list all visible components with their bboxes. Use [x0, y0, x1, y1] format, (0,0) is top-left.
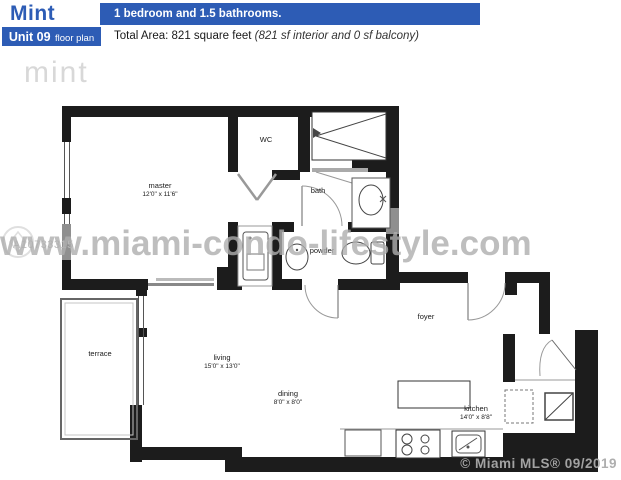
mls-credit: © Miami MLS® 09/2019	[0, 456, 617, 471]
page-title: Mint	[10, 2, 55, 26]
room-label-dining: dining 8'0" x 8'0"	[260, 389, 316, 408]
powder-door	[305, 285, 338, 318]
room-label-foyer: foyer	[408, 312, 444, 322]
room-label-terrace: terrace	[72, 349, 128, 359]
room-label-master: master 12'0" x 11'6"	[128, 181, 192, 200]
sliding-door	[148, 278, 214, 286]
site-watermark: www.miami-condo-lifestyle.com	[0, 224, 621, 264]
stove	[396, 430, 440, 458]
shower	[312, 112, 386, 183]
room-label-living: living 15'0" x 13'0"	[192, 353, 252, 372]
closet-door	[540, 340, 576, 376]
wc-bifold-doors	[238, 174, 276, 200]
mint-building-logo: mint	[24, 56, 89, 90]
total-area-detail: (821 sf interior and 0 sf balcony)	[255, 30, 419, 42]
unit-badge: Unit 09 floor plan	[2, 27, 101, 46]
summary-text: 1 bedroom and 1.5 bathrooms.	[114, 8, 281, 20]
terrace-outline	[61, 299, 137, 439]
bath-vanity	[352, 178, 390, 228]
summary-bar: 1 bedroom and 1.5 bathrooms.	[100, 3, 480, 25]
dishwasher	[505, 390, 533, 423]
entry-door	[468, 283, 505, 320]
room-label-kitchen: kitchen 14'0" x 8'8"	[448, 404, 504, 423]
unit-suffix: floor plan	[55, 33, 94, 44]
room-label-wc: WC	[246, 135, 286, 145]
total-area-bar: Total Area: 821 square feet (821 sf inte…	[100, 26, 520, 47]
room-label-bath: bath	[300, 186, 336, 196]
unit-number: Unit 09	[9, 30, 51, 44]
kitchen-sink	[452, 431, 485, 457]
total-area-text: Total Area: 821 square feet	[114, 30, 251, 42]
